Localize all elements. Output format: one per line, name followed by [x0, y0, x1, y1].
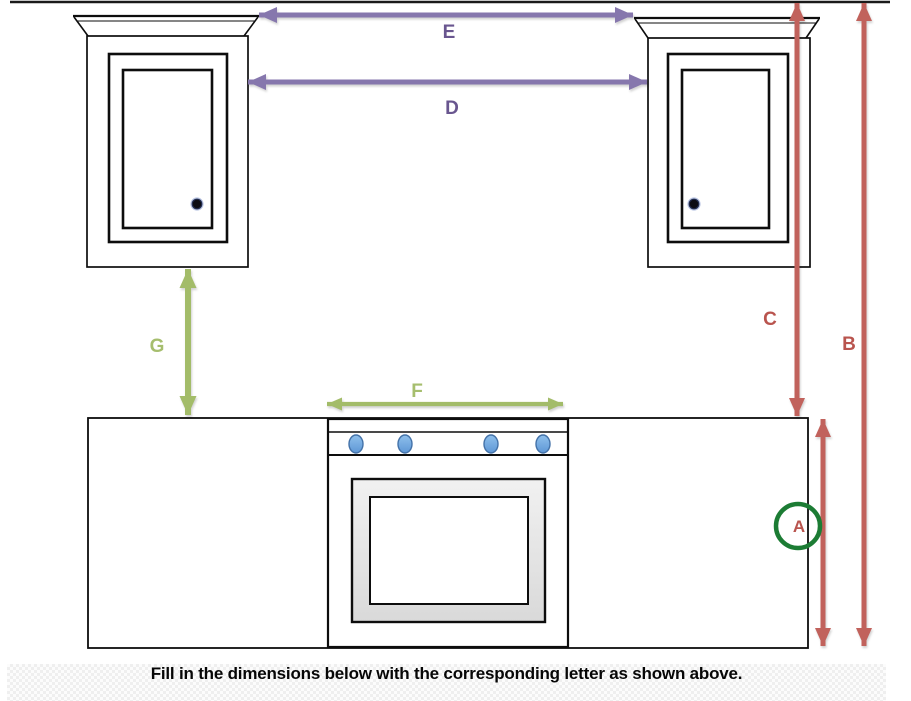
dimension-label-a: A — [793, 517, 805, 536]
dimension-label-c: C — [763, 309, 777, 330]
door-knob — [689, 199, 700, 210]
stove-knob — [398, 435, 412, 453]
kitchen-dimension-diagram: E D C B G F A — [0, 0, 911, 663]
stove-knob — [536, 435, 550, 453]
oven-window — [370, 497, 528, 604]
dimension-label-b: B — [842, 334, 856, 355]
crown-slant-left — [635, 19, 648, 38]
crown-slant-left — [74, 17, 88, 36]
crown-slant-right — [806, 19, 819, 38]
dimension-label-g: G — [150, 336, 165, 357]
dimension-label-f: F — [411, 381, 423, 402]
right-wall-cabinet — [634, 18, 820, 267]
stove-knob — [484, 435, 498, 453]
instruction-text: Fill in the dimensions below with the co… — [151, 664, 743, 684]
left-wall-cabinet — [73, 16, 259, 267]
stove-knob — [349, 435, 363, 453]
dimension-label-d: D — [445, 98, 459, 119]
door-knob — [192, 199, 203, 210]
instruction-bar: Fill in the dimensions below with the co… — [7, 664, 886, 701]
dimension-label-e: E — [443, 22, 456, 43]
stove — [328, 419, 568, 647]
crown-slant-right — [244, 17, 258, 36]
